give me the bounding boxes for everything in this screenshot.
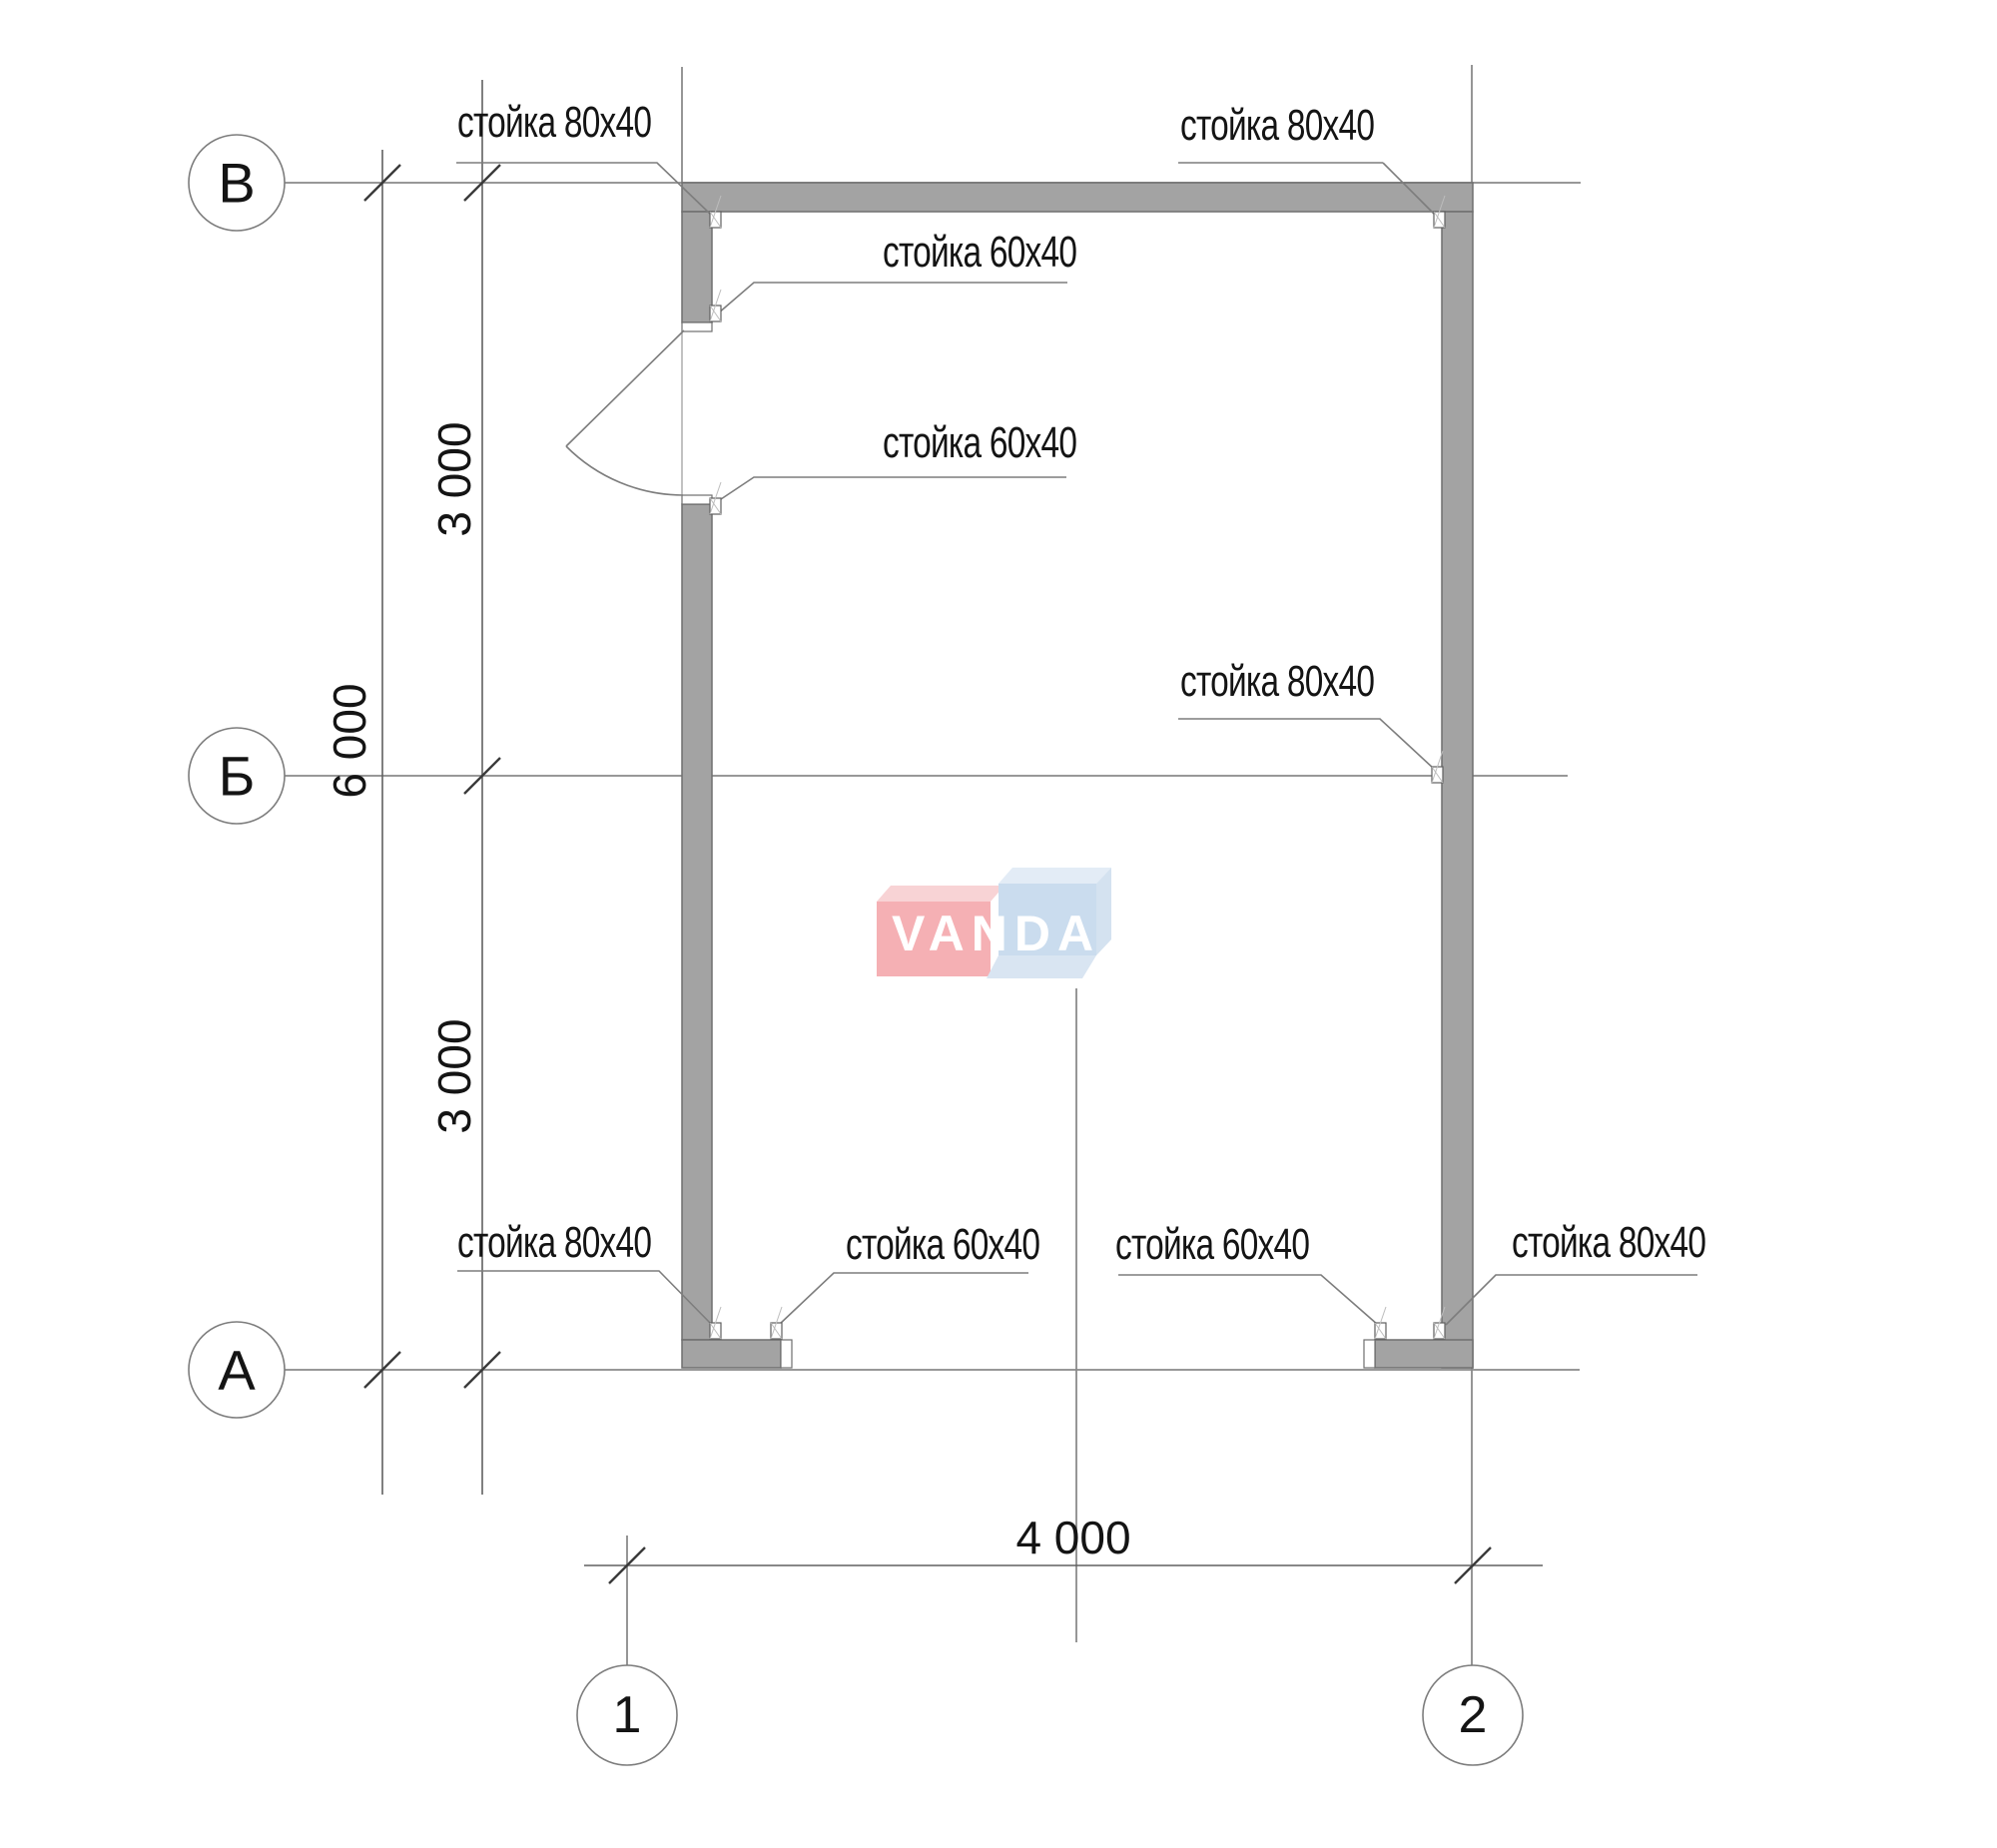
label-post-bottom-left: стойка 80x40 xyxy=(457,1218,651,1268)
leader-mid-right xyxy=(1178,719,1434,769)
wall-bottom-right xyxy=(1375,1340,1473,1368)
dimension-4000: 4 000 xyxy=(1015,1511,1130,1564)
axis-lines xyxy=(272,65,1581,1665)
label-post-door-bottom: стойка 60x40 xyxy=(883,418,1076,468)
axis-label-a: А xyxy=(218,1338,255,1403)
label-post-bottom-right: стойка 80x40 xyxy=(1512,1218,1705,1268)
wall-right xyxy=(1442,212,1473,1368)
wall-left-lower xyxy=(682,504,712,1340)
gate-jamb-right xyxy=(1364,1340,1375,1368)
label-post-top-right: стойка 80x40 xyxy=(1180,101,1374,151)
logo-blue-bevel-top xyxy=(998,868,1111,884)
leader-opening-left xyxy=(779,1273,1028,1325)
dimension-6000: 6 000 xyxy=(323,683,376,798)
wall-top xyxy=(682,183,1473,212)
axis-label-2: 2 xyxy=(1459,1685,1488,1745)
label-post-opening-left: стойка 60x40 xyxy=(846,1220,1039,1270)
opening-jambs xyxy=(682,322,1375,1368)
wall-left-upper xyxy=(682,212,712,322)
axis-label-b: Б xyxy=(219,744,256,809)
label-post-mid-right: стойка 80x40 xyxy=(1180,657,1374,707)
gate-jamb-left xyxy=(781,1340,792,1368)
axis-bubbles xyxy=(189,135,1523,1765)
watermark-text: VANDA xyxy=(892,905,1100,962)
leader-opening-right xyxy=(1118,1275,1378,1325)
floor-plan-canvas: стойка 80x40 стойка 80x40 стойка 60x40 с… xyxy=(0,0,1997,1848)
door-swing-arc xyxy=(566,446,683,495)
leader-door-bottom xyxy=(718,477,1066,501)
door-jamb-bottom xyxy=(682,495,712,504)
axis-label-1: 1 xyxy=(613,1685,642,1745)
logo-red-bevel xyxy=(877,886,1004,902)
door xyxy=(566,330,684,495)
label-post-opening-right: стойка 60x40 xyxy=(1115,1220,1309,1270)
dimension-3000-upper: 3 000 xyxy=(427,421,481,536)
label-post-door-top: стойка 60x40 xyxy=(883,228,1076,278)
wall-posts xyxy=(710,196,1445,1339)
label-post-top-left: стойка 80x40 xyxy=(457,98,651,148)
door-jamb-top xyxy=(682,322,712,331)
leader-door-top xyxy=(718,283,1067,313)
wall-bottom-left xyxy=(682,1340,781,1368)
door-leaf xyxy=(566,330,684,446)
dimension-3000-lower: 3 000 xyxy=(427,1018,481,1133)
leader-bottom-right xyxy=(1446,1275,1697,1325)
axis-label-v: В xyxy=(218,151,255,216)
leader-bottom-left xyxy=(457,1271,712,1325)
